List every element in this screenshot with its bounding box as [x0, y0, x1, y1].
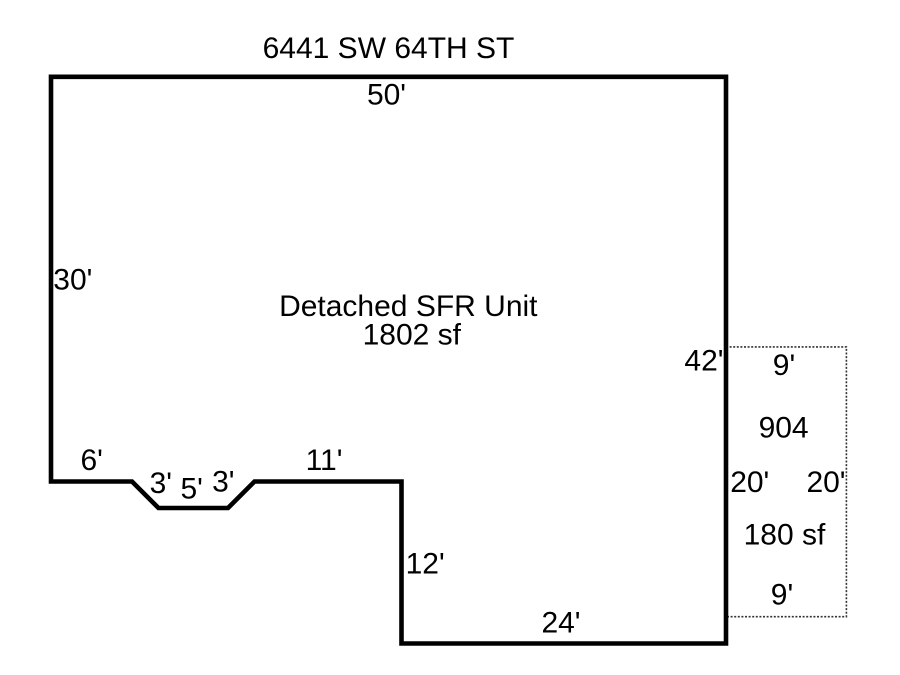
svg-text:11': 11' — [306, 444, 343, 477]
svg-text:24': 24' — [541, 607, 580, 640]
svg-text:6': 6' — [80, 444, 102, 477]
svg-text:9': 9' — [771, 579, 793, 612]
svg-text:904: 904 — [759, 412, 809, 445]
svg-text:3': 3' — [212, 466, 234, 499]
svg-text:20': 20' — [730, 466, 769, 499]
svg-text:30': 30' — [53, 264, 92, 297]
svg-text:20': 20' — [806, 466, 845, 499]
svg-text:9': 9' — [773, 349, 795, 382]
svg-text:3': 3' — [150, 467, 172, 500]
svg-text:1802 sf: 1802 sf — [363, 318, 462, 351]
svg-text:5': 5' — [180, 472, 202, 505]
svg-text:12': 12' — [406, 548, 445, 581]
svg-text:50': 50' — [367, 79, 406, 112]
svg-text:42': 42' — [684, 345, 723, 378]
svg-text:180 sf: 180 sf — [744, 518, 826, 551]
svg-text:6441 SW 64TH ST: 6441 SW 64TH ST — [263, 32, 515, 65]
